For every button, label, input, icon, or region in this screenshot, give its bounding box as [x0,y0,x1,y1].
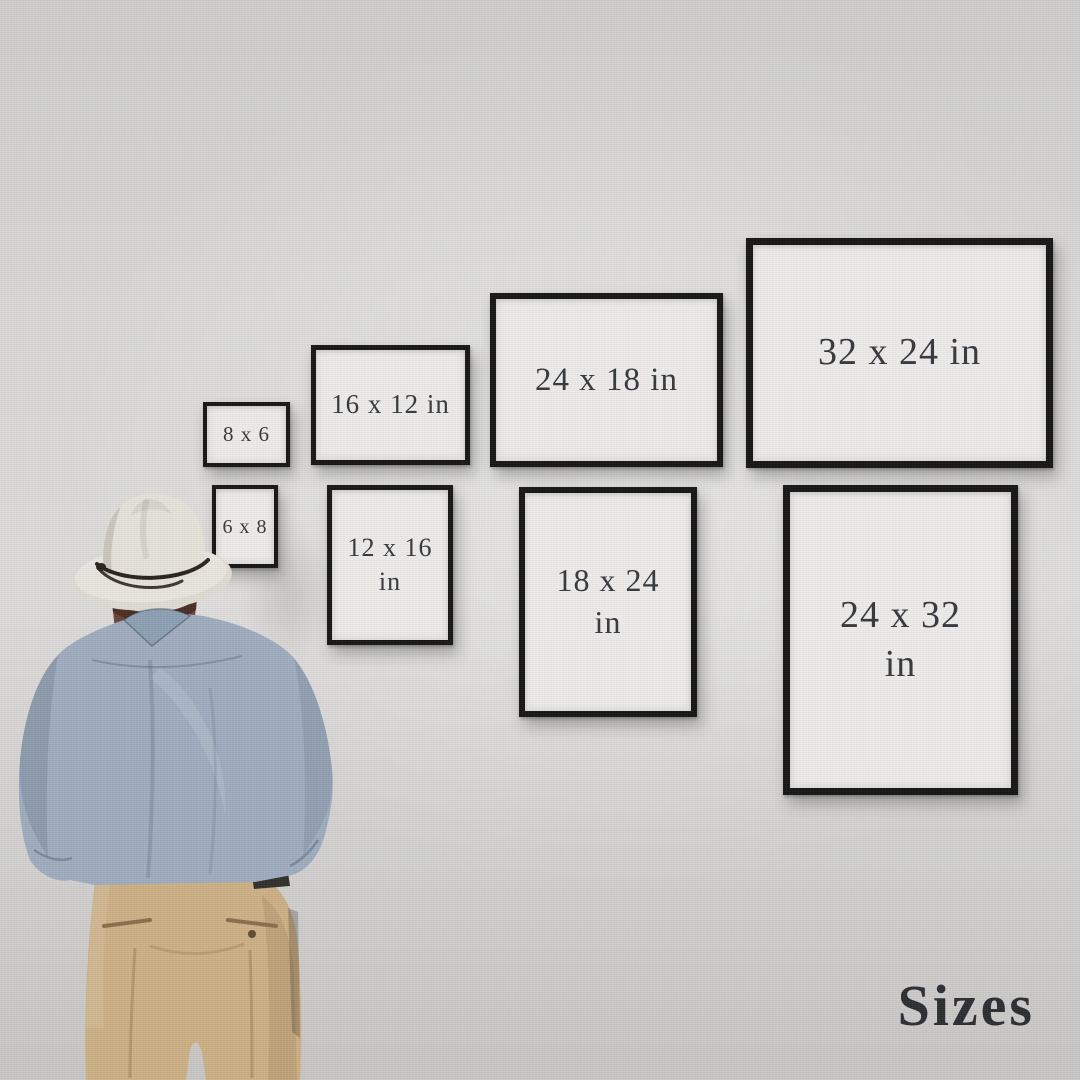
size-guide-image: 8 x 6 16 x 12 in 24 x 18 in 32 x 24 in 6… [0,0,1080,1080]
frame-24x32-label-line2: in [840,640,961,689]
frame-32x24-label-line1: 32 x 24 in [818,328,981,377]
frame-12x16-label: 12 x 16 in [348,531,433,599]
frame-32x24-label: 32 x 24 in [818,328,981,377]
frame-12x16-label-line2: in [348,565,433,599]
frame-6x8-label: 6 x 8 [223,514,268,540]
frame-6x8-label-line1: 6 x 8 [223,514,268,540]
shirt [19,609,333,885]
frame-12x16-label-line1: 12 x 16 [348,531,433,565]
frame-24x32: 24 x 32 in [783,485,1018,795]
frame-18x24-label-line1: 18 x 24 [557,560,660,602]
frame-18x24-label-line2: in [557,602,660,644]
frame-8x6-label: 8 x 6 [223,421,270,448]
frame-24x18-label-line1: 24 x 18 in [535,359,678,402]
frame-24x32-label-line1: 24 x 32 [840,591,961,640]
frame-24x18: 24 x 18 in [490,293,723,467]
caption-sizes: Sizes [898,972,1035,1039]
hat [70,494,234,616]
frame-16x12-label: 16 x 12 in [331,387,450,422]
frame-8x6-label-line1: 8 x 6 [223,421,270,448]
frame-8x6: 8 x 6 [203,402,290,467]
frame-24x32-label: 24 x 32 in [840,591,961,690]
frame-18x24: 18 x 24 in [519,487,697,717]
pocket-button [248,930,256,938]
frame-32x24: 32 x 24 in [746,238,1053,468]
frame-16x12: 16 x 12 in [311,345,470,465]
frame-18x24-label: 18 x 24 in [557,560,660,643]
frame-12x16: 12 x 16 in [327,485,453,645]
pants [85,877,301,1080]
man-figure [0,478,345,1080]
frame-24x18-label: 24 x 18 in [535,359,678,402]
frame-16x12-label-line1: 16 x 12 in [331,387,450,422]
